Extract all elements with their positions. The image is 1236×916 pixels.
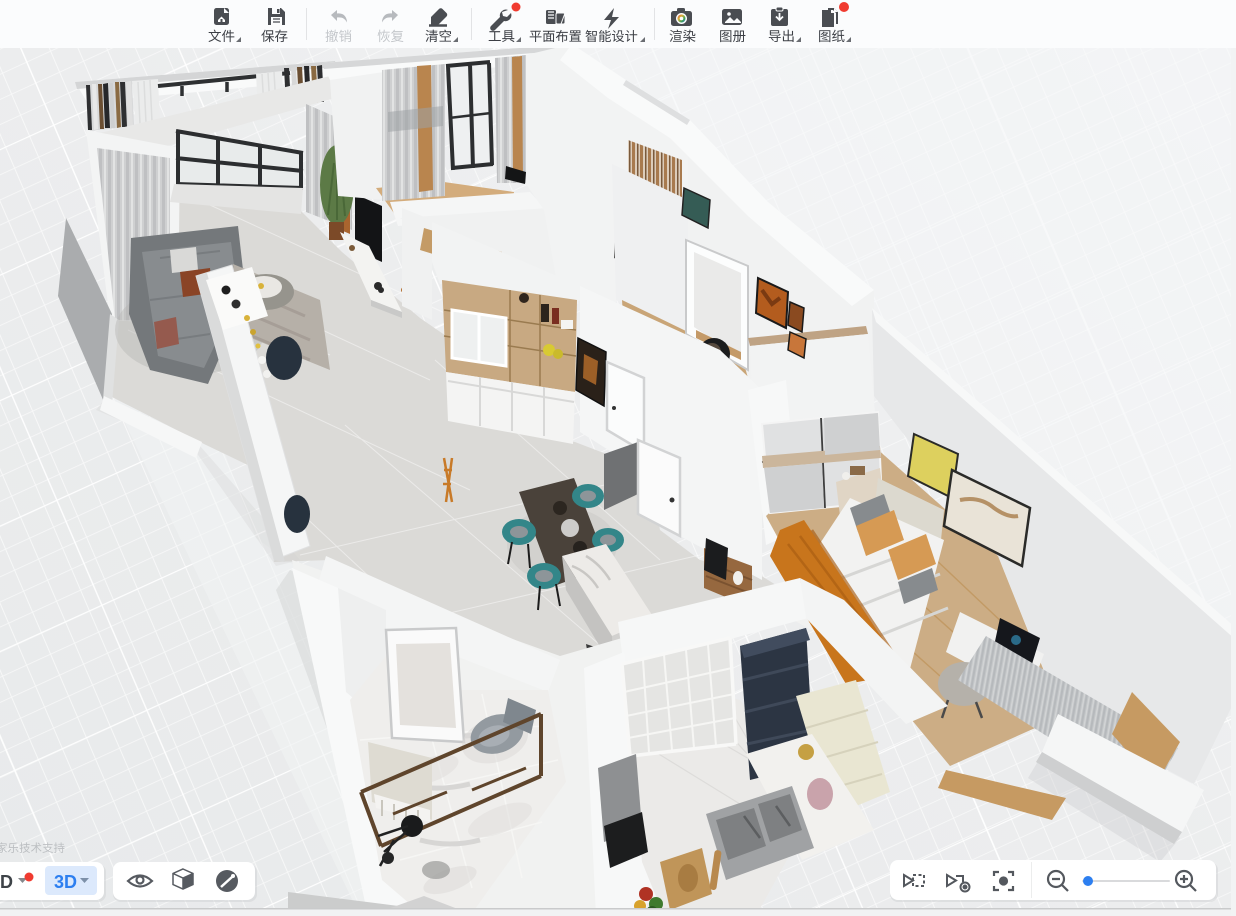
svg-text:D: D <box>0 872 13 892</box>
svg-text:3D: 3D <box>54 872 77 892</box>
